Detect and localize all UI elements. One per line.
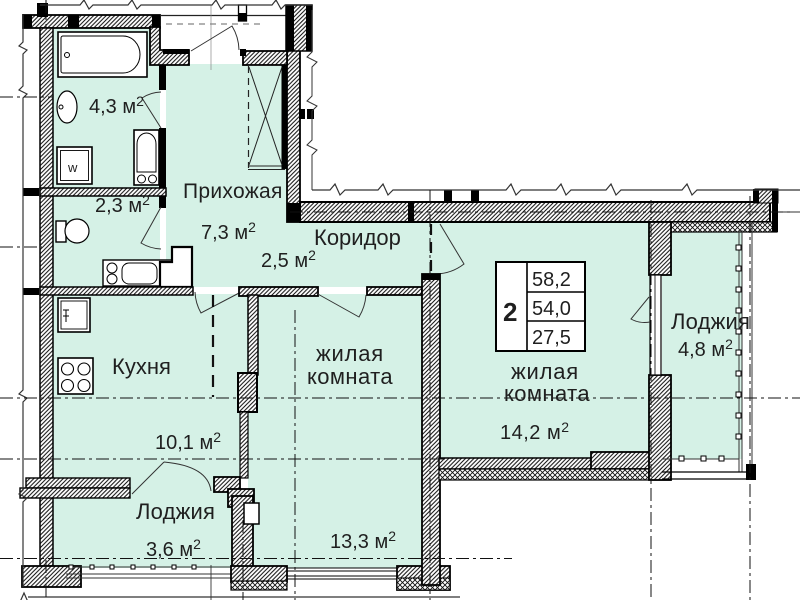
svg-text:3,6 м2: 3,6 м2 [146,536,201,561]
svg-text:Лоджия: Лоджия [136,499,215,524]
svg-text:w: w [67,160,78,175]
svg-text:54,0: 54,0 [532,298,571,320]
svg-text:Коридор: Коридор [314,225,401,250]
svg-text:10,1 м2: 10,1 м2 [155,429,221,454]
svg-text:комната: комната [504,381,590,406]
svg-text:27,5: 27,5 [532,327,571,349]
svg-text:13,3 м2: 13,3 м2 [330,528,396,553]
svg-text:4,8 м2: 4,8 м2 [678,336,733,361]
svg-text:Прихожая: Прихожая [183,180,283,203]
svg-text:Кухня: Кухня [112,354,171,379]
svg-text:жилая: жилая [316,341,384,366]
svg-text:2,5 м2: 2,5 м2 [261,247,316,272]
svg-text:комната: комната [307,364,393,389]
svg-text:7,3 м2: 7,3 м2 [201,219,256,244]
svg-text:2,3 м2: 2,3 м2 [95,192,150,217]
svg-text:14,2 м2: 14,2 м2 [500,419,570,444]
svg-text:2: 2 [503,297,517,327]
svg-text:58,2: 58,2 [532,269,571,291]
svg-text:Лоджия: Лоджия [671,309,750,334]
svg-text:4,3 м2: 4,3 м2 [89,93,144,118]
